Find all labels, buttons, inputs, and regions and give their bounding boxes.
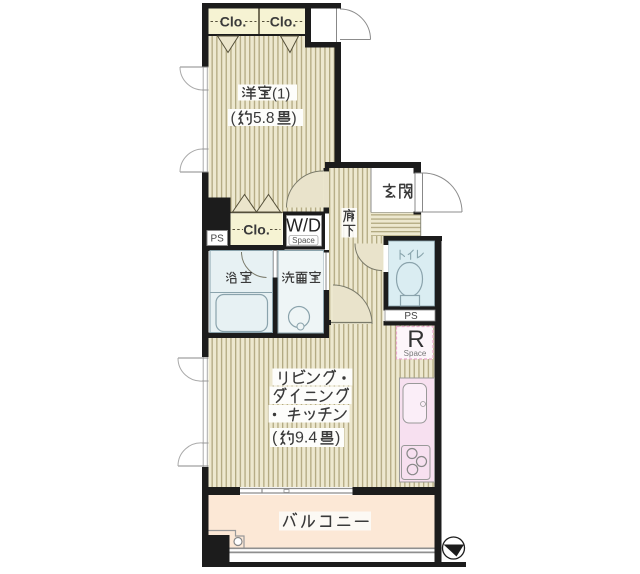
svg-text:Space: Space xyxy=(404,349,427,358)
svg-text:(: ( xyxy=(272,430,278,447)
svg-text:): ) xyxy=(335,430,340,447)
svg-text:Space: Space xyxy=(292,236,315,245)
svg-text:(: ( xyxy=(231,110,237,127)
svg-text:5.8: 5.8 xyxy=(253,110,275,127)
svg-text:W/D: W/D xyxy=(286,216,321,236)
svg-text:Clo.: Clo. xyxy=(220,14,246,30)
svg-text:(1): (1) xyxy=(272,86,290,103)
svg-text:PS: PS xyxy=(404,311,418,322)
svg-text:Clo.: Clo. xyxy=(243,222,269,238)
svg-text:): ) xyxy=(292,110,297,127)
svg-text:9.4: 9.4 xyxy=(295,430,317,447)
svg-text:Clo.: Clo. xyxy=(270,14,296,30)
svg-text:PS: PS xyxy=(211,234,225,245)
